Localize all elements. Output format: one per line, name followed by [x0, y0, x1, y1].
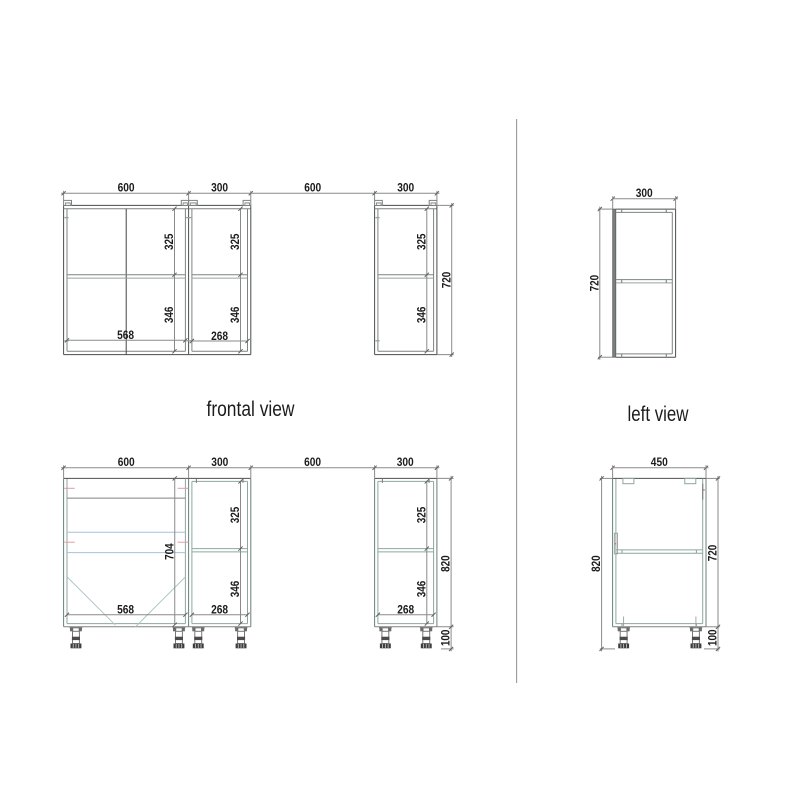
svg-text:600: 600	[304, 455, 321, 469]
svg-text:600: 600	[304, 181, 321, 195]
svg-text:left view: left view	[628, 403, 690, 426]
svg-text:346: 346	[228, 581, 242, 598]
svg-text:720: 720	[439, 272, 453, 289]
svg-text:300: 300	[397, 181, 414, 195]
svg-text:268: 268	[397, 603, 414, 617]
svg-text:820: 820	[439, 555, 453, 572]
svg-text:100: 100	[439, 629, 453, 646]
svg-text:325: 325	[414, 507, 428, 524]
svg-text:600: 600	[118, 455, 135, 469]
svg-text:346: 346	[228, 307, 242, 324]
svg-text:720: 720	[706, 545, 720, 562]
svg-text:346: 346	[414, 307, 428, 324]
svg-text:820: 820	[589, 555, 603, 572]
svg-text:300: 300	[211, 455, 228, 469]
svg-text:346: 346	[414, 581, 428, 598]
svg-text:568: 568	[117, 328, 134, 342]
svg-text:704: 704	[162, 543, 176, 560]
svg-text:268: 268	[211, 329, 228, 343]
svg-text:300: 300	[211, 181, 228, 195]
svg-text:600: 600	[118, 181, 135, 195]
svg-text:568: 568	[117, 603, 134, 617]
svg-text:325: 325	[228, 233, 242, 250]
svg-text:300: 300	[636, 186, 653, 200]
svg-text:100: 100	[706, 629, 720, 646]
svg-text:720: 720	[587, 275, 601, 292]
svg-text:346: 346	[162, 307, 176, 324]
svg-text:325: 325	[162, 233, 176, 250]
svg-text:325: 325	[228, 507, 242, 524]
svg-text:325: 325	[414, 233, 428, 250]
svg-text:450: 450	[651, 455, 668, 469]
svg-text:268: 268	[211, 603, 228, 617]
svg-text:frontal view: frontal view	[207, 398, 296, 421]
svg-text:300: 300	[397, 455, 414, 469]
